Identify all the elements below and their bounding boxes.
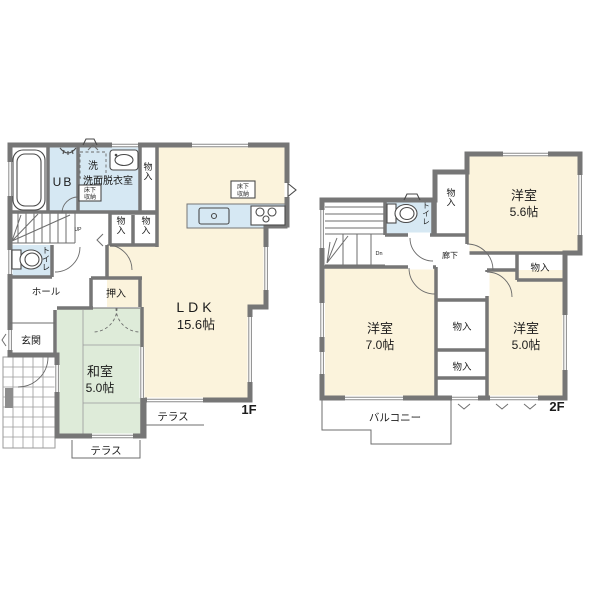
entry-arrow	[2, 334, 6, 346]
entrance-porch-grid	[3, 357, 55, 448]
room-area-ne: 5.6帖	[510, 204, 539, 219]
balcony-label: バルコニー	[369, 412, 421, 424]
room-label-oshiire: 押入	[106, 287, 126, 300]
underfloor-ldk-line1: 床下	[237, 183, 249, 191]
closet-m2-label: 物入	[452, 361, 472, 373]
floor-2f-plan: 物入 トイレ Dn 洋室 5.6帖 廊下 物入 洋室 7.0帖 物入 物入 洋室…	[320, 152, 583, 445]
room-area-ldk: 15.6帖	[177, 317, 215, 332]
floorplan-canvas: 床下 収納 床下 収納 UB 洗 洗面脱衣室 物入 物入 物入 トイレ UP ホ…	[0, 0, 600, 599]
underfloor-wash-line1: 床下	[84, 186, 96, 194]
room-area-se: 5.0帖	[512, 337, 541, 352]
toilet-1f-label: トイレ	[42, 246, 50, 272]
corridor-label: 廊下	[442, 250, 458, 260]
room-label-washitsu: 和室	[87, 364, 113, 379]
porch-step-stone	[5, 388, 13, 408]
closet-n-label: 物入	[446, 187, 455, 207]
closet-tall-label: 物入	[143, 161, 152, 181]
underfloor-wash-line2: 収納	[84, 193, 96, 201]
closet-m1-label: 物入	[452, 321, 472, 333]
room-ne-fill	[467, 154, 580, 253]
kitchen-door-arrow	[288, 184, 296, 197]
toilet-2f-icon	[387, 204, 417, 223]
stove-icon	[251, 206, 285, 225]
washer-label: 洗	[88, 160, 98, 172]
passage-chevron	[97, 234, 103, 246]
room-label-senmen: 洗面脱衣室	[83, 174, 133, 187]
bathtub-icon	[13, 150, 45, 210]
stairs-up-label: UP	[75, 227, 83, 233]
closet-e-label: 物入	[530, 262, 550, 274]
room-label-ub: UB	[53, 175, 74, 189]
closet-a-label: 物入	[116, 215, 125, 235]
toilet-2f-label: トイレ	[422, 201, 430, 226]
floor-1f-plan: 床下 収納 床下 収納 UB 洗 洗面脱衣室 物入 物入 物入 トイレ UP ホ…	[2, 139, 296, 458]
underfloor-storage-washroom: 床下 収納	[79, 185, 101, 201]
closet-b-label: 物入	[141, 215, 150, 235]
room-label-hall: ホール	[32, 287, 61, 298]
room-area-washitsu: 5.0帖	[86, 380, 115, 395]
room-label-ne: 洋室	[511, 188, 537, 203]
stairs-dn-label: Dn	[375, 251, 382, 257]
room-label-se: 洋室	[513, 321, 539, 336]
room-label-ldk: LDK	[176, 299, 215, 315]
terrace-south-label: テラス	[90, 445, 121, 457]
room-label-sw: 洋室	[367, 321, 393, 336]
underfloor-storage-ldk: 床下 収納	[231, 181, 255, 198]
room-label-genkan: 玄関	[21, 334, 41, 347]
stairs-1f	[10, 213, 75, 243]
wash-basin-icon	[110, 150, 138, 170]
room-area-sw: 7.0帖	[366, 337, 395, 352]
floor-1f-label: 1F	[241, 402, 256, 417]
floorplan-svg: 床下 収納 床下 収納 UB 洗 洗面脱衣室 物入 物入 物入 トイレ UP ホ…	[0, 0, 600, 599]
terrace-east-label: テラス	[157, 411, 188, 423]
floor-2f-label: 2F	[549, 399, 564, 414]
underfloor-ldk-line2: 収納	[237, 190, 249, 198]
toilet-1f-icon	[12, 250, 42, 269]
